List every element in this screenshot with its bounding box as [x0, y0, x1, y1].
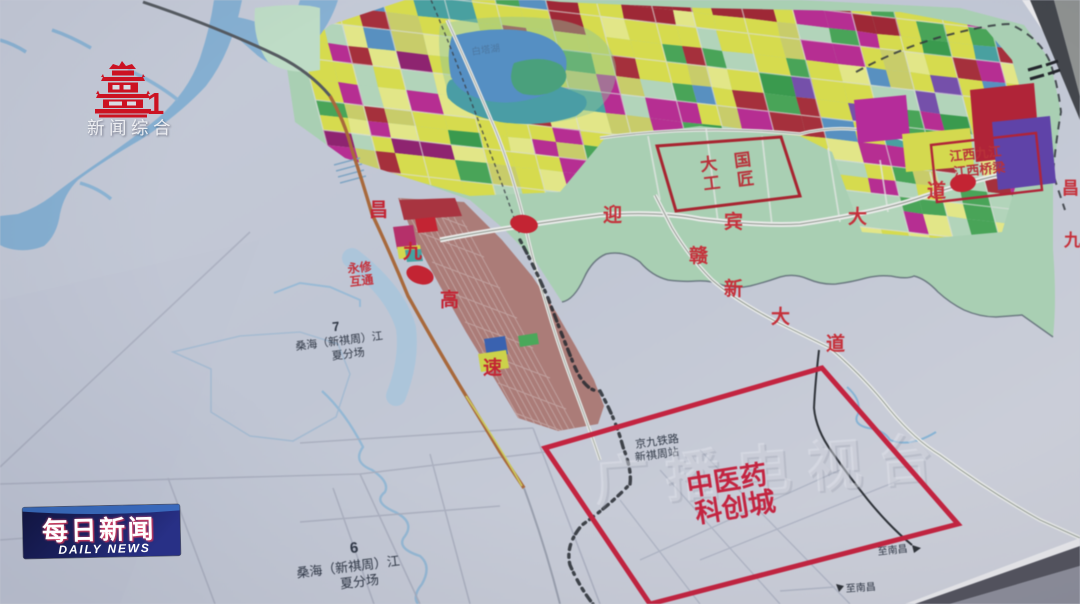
svg-text:1: 1 — [147, 86, 164, 121]
svg-text:新闻综合: 新闻综合 — [87, 118, 175, 138]
svg-text:DAILY NEWS: DAILY NEWS — [58, 541, 151, 557]
